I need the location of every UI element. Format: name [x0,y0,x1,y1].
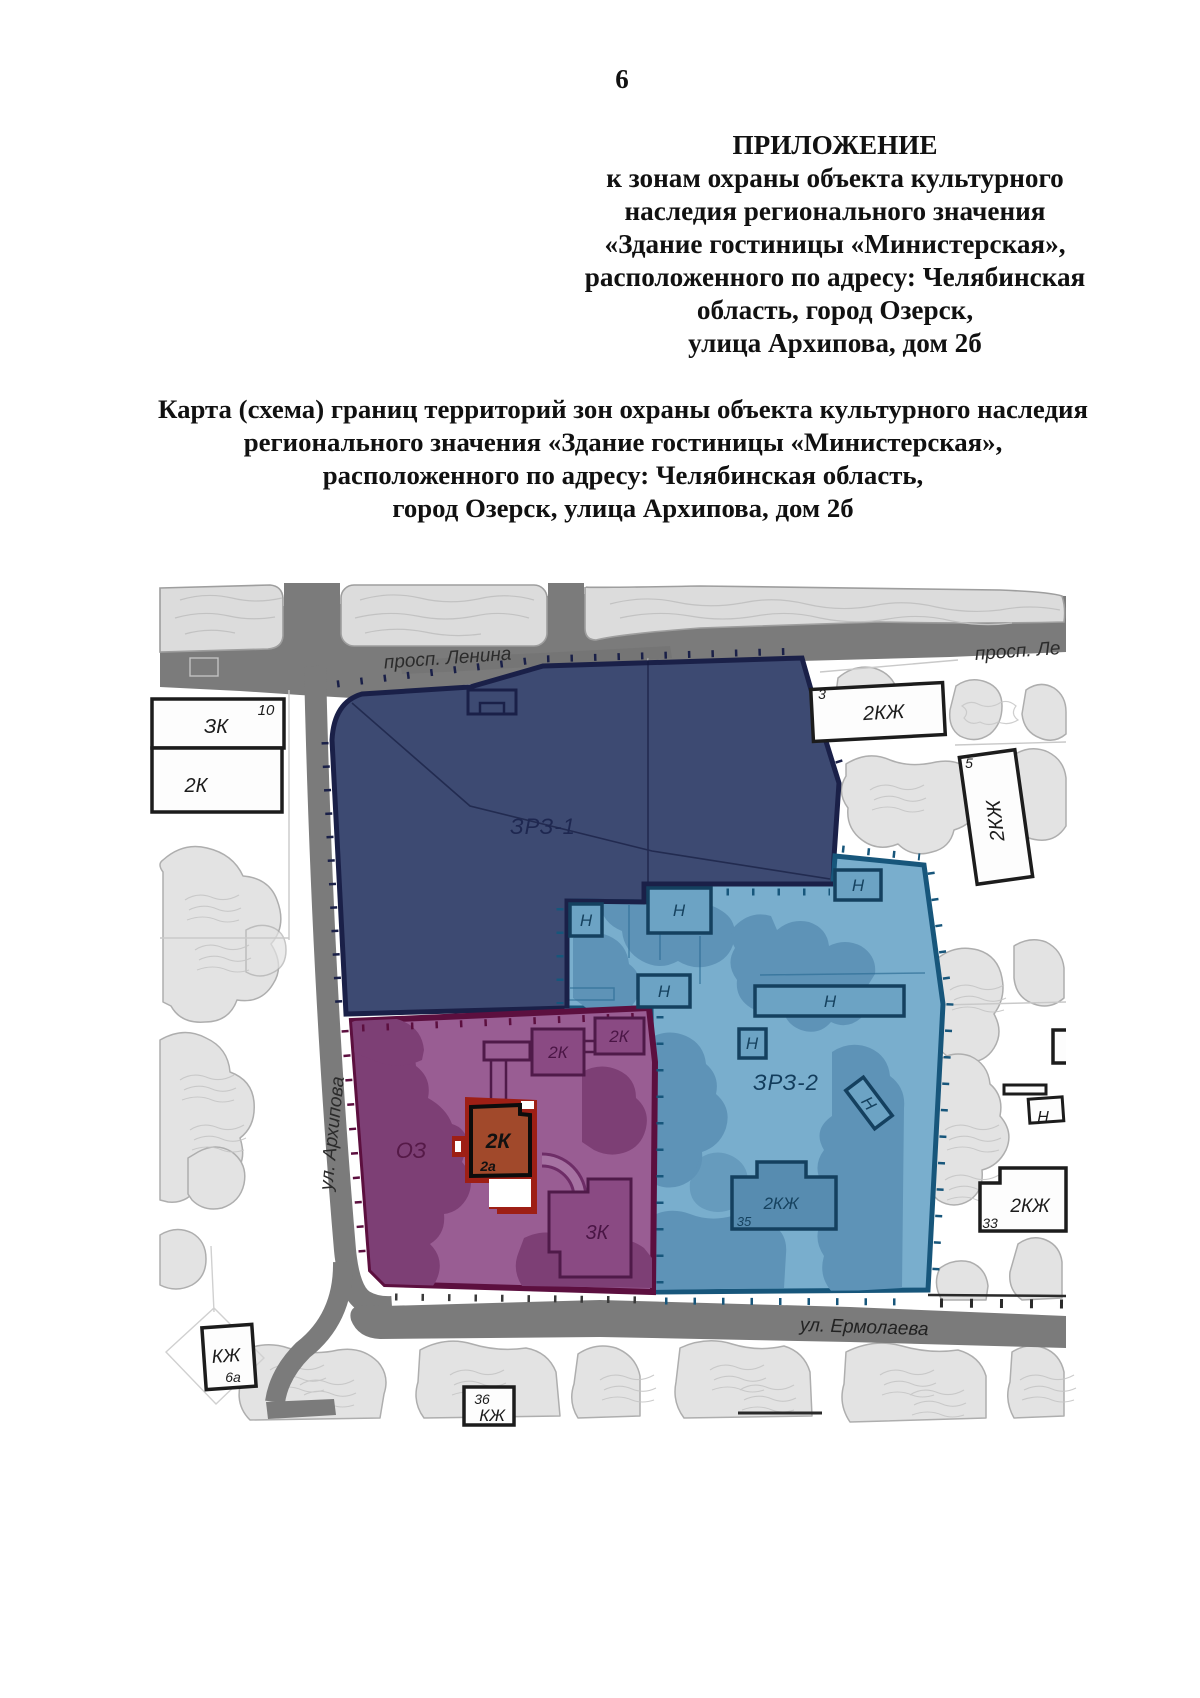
svg-text:Н: Н [746,1034,759,1053]
svg-text:КЖ: КЖ [211,1345,243,1368]
svg-text:10: 10 [258,702,275,719]
svg-text:2К: 2К [547,1043,568,1062]
svg-text:2а: 2а [479,1158,496,1174]
svg-text:33: 33 [982,1215,998,1231]
svg-text:2К: 2К [608,1027,629,1046]
svg-text:ЗРЗ-1: ЗРЗ-1 [510,814,576,839]
svg-text:35: 35 [737,1214,752,1229]
svg-text:3: 3 [818,686,826,702]
svg-text:2К: 2К [485,1130,513,1153]
svg-text:2КЖ: 2КЖ [862,701,907,725]
svg-text:Н: Н [1037,1109,1049,1126]
svg-text:КЖ: КЖ [479,1406,506,1425]
svg-text:2К: 2К [184,775,209,797]
svg-text:3К: 3К [586,1222,610,1244]
svg-text:2КЖ: 2КЖ [1009,1196,1051,1217]
svg-text:ЗРЗ-2: ЗРЗ-2 [753,1070,819,1095]
svg-text:6а: 6а [225,1369,241,1385]
svg-text:ОЗ: ОЗ [396,1138,427,1163]
svg-text:Н: Н [580,911,593,930]
svg-text:36: 36 [474,1391,490,1407]
svg-text:ЗК: ЗК [204,716,229,738]
svg-text:Н: Н [852,876,865,895]
svg-text:Н: Н [658,982,671,1001]
svg-text:5: 5 [965,755,973,771]
svg-text:Н: Н [673,901,686,920]
svg-text:Н: Н [824,992,837,1011]
svg-text:2КЖ: 2КЖ [762,1194,799,1213]
